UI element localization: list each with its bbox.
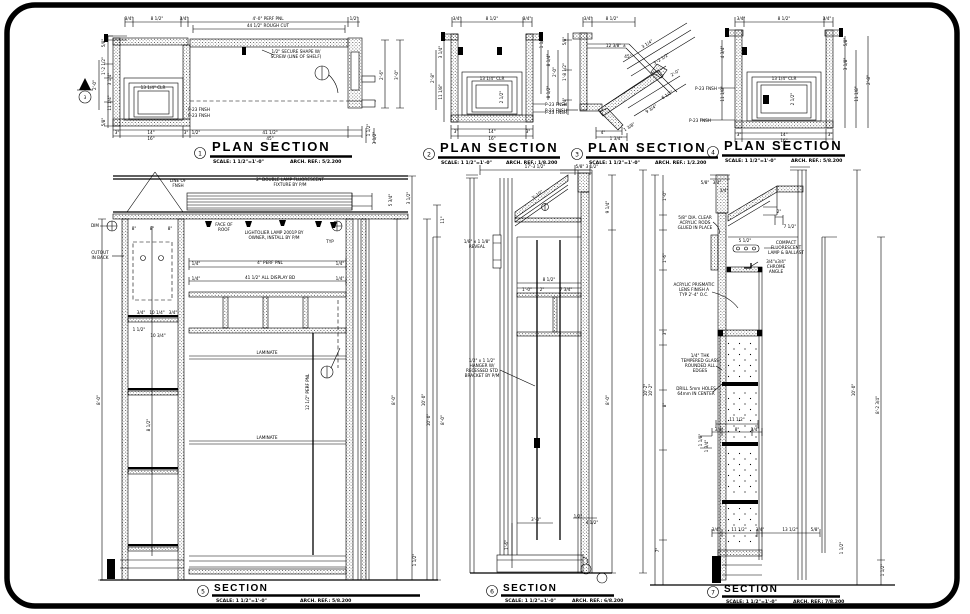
svg-text:P-23 FNSH: P-23 FNSH bbox=[188, 113, 210, 118]
svg-text:12 1/2" PERF PNL: 12 1/2" PERF PNL bbox=[305, 373, 310, 410]
view-title: 3 PLAN SECTION SCALE: 1 1/2"=1'-0" ARCH.… bbox=[572, 140, 719, 166]
view-scale: SCALE: 1 1/2"=1'-0" bbox=[216, 598, 267, 604]
svg-text:5/8": 5/8" bbox=[701, 180, 710, 185]
svg-text:3": 3" bbox=[184, 130, 189, 135]
svg-text:8'-2 3/4": 8'-2 3/4" bbox=[875, 396, 880, 414]
svg-text:8'-0": 8'-0" bbox=[605, 395, 610, 405]
drawing-sheet: 3/4"8 1/2"3/4"4'-0" PERF PNL1/2"44 1/2" … bbox=[0, 0, 970, 614]
svg-text:3/4": 3/4" bbox=[737, 16, 746, 21]
svg-text:3 1/4": 3 1/4" bbox=[107, 73, 112, 86]
view-ref: ARCH. REF.: 7/8.200 bbox=[793, 599, 844, 605]
svg-text:1 3/8": 1 3/8" bbox=[623, 121, 636, 132]
svg-text:5/8": 5/8" bbox=[562, 37, 567, 46]
svg-text:1'-0": 1'-0" bbox=[662, 191, 667, 201]
svg-text:TYP: TYP bbox=[325, 239, 334, 244]
svg-text:3'-0": 3'-0" bbox=[531, 517, 541, 522]
svg-text:EDGES: EDGES bbox=[693, 368, 708, 373]
view-scale: SCALE: 1 1/2"=1'-0" bbox=[213, 159, 264, 165]
svg-text:11 1/8": 11 1/8" bbox=[720, 86, 725, 101]
svg-text:3 1/2": 3 1/2" bbox=[372, 132, 377, 145]
svg-text:3/4": 3/4" bbox=[751, 427, 760, 432]
svg-text:3": 3" bbox=[115, 130, 120, 135]
svg-text:7": 7" bbox=[655, 548, 660, 553]
view-title-text: SECTION bbox=[503, 583, 557, 594]
svg-text:10'-0": 10'-0" bbox=[426, 414, 431, 427]
svg-text:11 1/4": 11 1/4" bbox=[107, 95, 112, 110]
svg-text:3'-0": 3'-0" bbox=[394, 70, 399, 80]
svg-text:12 3/8" ±: 12 3/8" ± bbox=[606, 43, 627, 48]
svg-text:1/2": 1/2" bbox=[350, 16, 359, 21]
svg-text:5 1/2": 5 1/2" bbox=[739, 238, 752, 243]
view-ref: ARCH. REF.: 5/8.200 bbox=[791, 158, 842, 164]
svg-text:TYP 2'-4" O.C.: TYP 2'-4" O.C. bbox=[679, 292, 709, 297]
svg-text:10'-0": 10'-0" bbox=[421, 394, 426, 407]
svg-text:13 1/4" CLR: 13 1/4" CLR bbox=[772, 76, 797, 81]
svg-text:3/4": 3/4" bbox=[137, 310, 146, 315]
svg-text:3/4": 3/4" bbox=[756, 527, 765, 532]
svg-text:8'-0": 8'-0" bbox=[440, 415, 445, 425]
svg-text:3: 3 bbox=[84, 95, 87, 100]
svg-text:2'-8": 2'-8" bbox=[430, 73, 435, 83]
svg-text:41 1/2" ALL DISPLAY BD: 41 1/2" ALL DISPLAY BD bbox=[245, 275, 295, 280]
svg-text:9 1/4": 9 1/4" bbox=[605, 201, 610, 214]
svg-text:3/4": 3/4" bbox=[523, 16, 532, 21]
svg-text:4" PERF PNL: 4" PERF PNL bbox=[257, 260, 283, 265]
view-scale: SCALE: 1 1/2"=1'-0" bbox=[726, 599, 777, 605]
svg-text:8'-0": 8'-0" bbox=[96, 395, 101, 405]
svg-text:13 1/2": 13 1/2" bbox=[782, 527, 797, 532]
svg-text:10'-2": 10'-2" bbox=[648, 384, 653, 397]
detail-marker-leader bbox=[327, 348, 340, 378]
section-5: LINE OFFNSH2" DOUBLE LAMP FLUORESCENTFIX… bbox=[91, 172, 438, 604]
svg-text:3": 3" bbox=[526, 129, 531, 134]
svg-text:2'-8": 2'-8" bbox=[866, 75, 871, 85]
svg-text:3/4": 3/4" bbox=[584, 16, 593, 21]
svg-text:1'-8 1/2": 1'-8 1/2" bbox=[562, 63, 567, 81]
svg-text:1'-2 1/2": 1'-2 1/2" bbox=[101, 57, 106, 75]
svg-text:3/4": 3/4" bbox=[125, 16, 134, 21]
svg-text:3/4": 3/4" bbox=[453, 16, 462, 21]
view-ref: ARCH. REF.: 5/2.200 bbox=[290, 159, 341, 165]
svg-text:REVEAL: REVEAL bbox=[469, 244, 486, 249]
view-scale: SCALE: 1 1/2"=1'-0" bbox=[441, 160, 492, 166]
svg-text:3/4": 3/4" bbox=[720, 188, 729, 193]
svg-text:8 1/2": 8 1/2" bbox=[543, 277, 556, 282]
svg-text:3/4": 3/4" bbox=[712, 527, 721, 532]
svg-text:1 1/2": 1 1/2" bbox=[412, 554, 417, 567]
view-title: 2 PLAN SECTION SCALE: 1 1/2"=1'-0" ARCH.… bbox=[424, 140, 561, 166]
svg-text:11 1/8": 11 1/8" bbox=[854, 86, 859, 101]
plan-section-3: 3/4"8 1/2"12 3/8" ±45°3 1/4"3'-2 1/2"2'-… bbox=[545, 16, 718, 166]
svg-text:8 1/2": 8 1/2" bbox=[546, 86, 551, 99]
view-title-text: SECTION bbox=[214, 583, 268, 594]
svg-text:IN BACK: IN BACK bbox=[91, 255, 108, 260]
svg-text:GLUED IN PLACE: GLUED IN PLACE bbox=[678, 225, 713, 230]
svg-text:11": 11" bbox=[440, 216, 445, 223]
svg-text:FNSH: FNSH bbox=[172, 183, 183, 188]
svg-text:LAMP & BALLAST: LAMP & BALLAST bbox=[768, 250, 804, 255]
svg-text:14": 14" bbox=[147, 130, 154, 135]
linework bbox=[558, 17, 695, 141]
svg-text:44 1/2" ROUGH CUT: 44 1/2" ROUGH CUT bbox=[247, 23, 290, 28]
view-title: 1 PLAN SECTION SCALE: 1 1/2"=1'-0" ARCH.… bbox=[195, 139, 353, 165]
svg-text:1 3/4": 1 3/4" bbox=[704, 440, 709, 453]
svg-text:11 1/2": 11 1/2" bbox=[731, 527, 746, 532]
svg-text:1/4": 1/4" bbox=[192, 261, 201, 266]
svg-text:41 1/2": 41 1/2" bbox=[262, 130, 277, 135]
svg-text:3 1/2": 3 1/2" bbox=[586, 164, 599, 169]
svg-text:3'-2 1/2": 3'-2 1/2" bbox=[652, 52, 670, 66]
svg-text:5 3/4": 5 3/4" bbox=[388, 194, 393, 207]
dimension-labels: LINE OFFNSH2" DOUBLE LAMP FLUORESCENTFIX… bbox=[91, 177, 426, 566]
view-scale: SCALE: 1 1/2"=1'-0" bbox=[505, 598, 556, 604]
svg-text:3/4": 3/4" bbox=[562, 98, 567, 107]
drawing-canvas: 3/4"8 1/2"3/4"4'-0" PERF PNL1/2"44 1/2" … bbox=[0, 0, 970, 614]
svg-text:3": 3" bbox=[662, 331, 667, 336]
svg-text:1 1/2": 1 1/2" bbox=[366, 124, 371, 137]
svg-text:SCREW (LINE OF SHELF): SCREW (LINE OF SHELF) bbox=[271, 54, 322, 59]
svg-text:4 1/2": 4 1/2" bbox=[586, 520, 599, 525]
svg-text:9 3/4": 9 3/4" bbox=[645, 103, 658, 114]
svg-text:1/2": 1/2" bbox=[192, 130, 201, 135]
svg-text:2 1/2": 2 1/2" bbox=[499, 91, 504, 104]
plan-section-4: 3/4"8 1/2"3/4"4 3/4"11 1/8"5/8"3 1/8"11 … bbox=[689, 16, 871, 164]
svg-text:3": 3" bbox=[454, 129, 459, 134]
svg-text:8 1/2": 8 1/2" bbox=[151, 16, 164, 21]
dimension-labels: 1'-0"1'-6"3"8"7"10'-2"5/8"3/4"3/4"5/8" D… bbox=[648, 180, 885, 576]
svg-text:3": 3" bbox=[737, 132, 742, 137]
svg-text:1'-0": 1'-0" bbox=[522, 287, 532, 292]
svg-text:P-23 FNSH: P-23 FNSH bbox=[689, 118, 711, 123]
svg-text:45°: 45° bbox=[624, 54, 631, 59]
svg-text:7 3/4": 7 3/4" bbox=[560, 287, 573, 292]
view-title-text: PLAN SECTION bbox=[212, 139, 330, 154]
svg-text:5/8": 5/8" bbox=[101, 118, 106, 127]
svg-text:ANGLE: ANGLE bbox=[769, 269, 784, 274]
plan-section-1: 3/4"8 1/2"3/4"4'-0" PERF PNL1/2"44 1/2" … bbox=[77, 16, 404, 165]
svg-text:LAMINATE: LAMINATE bbox=[256, 350, 277, 355]
svg-text:1/2": 1/2" bbox=[574, 514, 583, 519]
svg-text:5/8": 5/8" bbox=[101, 39, 106, 48]
svg-text:13 1/4" CLR: 13 1/4" CLR bbox=[480, 76, 505, 81]
svg-text:8 1/2": 8 1/2" bbox=[778, 16, 791, 21]
svg-text:1'-6": 1'-6" bbox=[662, 253, 667, 263]
view-scale: SCALE: 1 1/2"=1'-0" bbox=[725, 158, 776, 164]
svg-text:8": 8" bbox=[662, 403, 667, 408]
svg-text:3/4": 3/4" bbox=[715, 427, 724, 432]
svg-text:1/4": 1/4" bbox=[192, 276, 201, 281]
view-title-text: PLAN SECTION bbox=[724, 138, 842, 153]
view-title: 7 SECTION SCALE: 1 1/2"=1'-0" ARCH. REF.… bbox=[708, 584, 845, 605]
svg-text:3 1/4": 3 1/4" bbox=[438, 46, 443, 59]
svg-text:14": 14" bbox=[488, 129, 495, 134]
view-title: 6 SECTION SCALE: 1 1/2"=1'-0" ARCH. REF.… bbox=[487, 583, 624, 604]
svg-text:11 1/2": 11 1/2" bbox=[729, 417, 744, 422]
view-title-text: PLAN SECTION bbox=[588, 140, 706, 155]
svg-text:1 1/2": 1 1/2" bbox=[839, 542, 844, 555]
view-number: 7 bbox=[711, 590, 715, 597]
view-number: 2 bbox=[427, 152, 431, 159]
view-title-text: SECTION bbox=[724, 584, 778, 595]
svg-text:8 1/4": 8 1/4" bbox=[546, 54, 551, 67]
svg-text:7 1/2": 7 1/2" bbox=[784, 224, 797, 229]
view-number: 4 bbox=[711, 150, 715, 157]
svg-text:OWNER, INSTALL BY P/M: OWNER, INSTALL BY P/M bbox=[249, 235, 300, 240]
svg-text:ROOF: ROOF bbox=[218, 227, 231, 232]
svg-text:14": 14" bbox=[780, 132, 787, 137]
svg-text:FIXTURE BY P/M: FIXTURE BY P/M bbox=[273, 182, 306, 187]
svg-text:3": 3" bbox=[828, 132, 833, 137]
svg-text:16": 16" bbox=[147, 136, 154, 141]
svg-text:5/8": 5/8" bbox=[576, 164, 585, 169]
view-number: 3 bbox=[575, 152, 579, 159]
svg-text:1 1/2": 1 1/2" bbox=[539, 36, 544, 49]
svg-text:8 1/2": 8 1/2" bbox=[486, 16, 499, 21]
view-number: 1 bbox=[198, 151, 202, 158]
view-ref: ARCH. REF.: 1/2.200 bbox=[655, 160, 706, 166]
north-arrow-icon bbox=[79, 78, 91, 90]
svg-text:1/4": 1/4" bbox=[336, 276, 345, 281]
svg-text:10 3/4": 10 3/4" bbox=[150, 333, 165, 338]
svg-text:BRACKET BY P/M: BRACKET BY P/M bbox=[465, 373, 500, 378]
plan-section-2: 3/4"8 1/2"3/4"3 1/4"11 1/8"2'-8"1 1/2"8 … bbox=[424, 16, 567, 166]
svg-text:P-23 FNSH: P-23 FNSH bbox=[695, 86, 717, 91]
svg-text:3/4": 3/4" bbox=[169, 310, 178, 315]
svg-text:1'-6": 1'-6" bbox=[504, 540, 509, 550]
svg-text:1 1/2": 1 1/2" bbox=[880, 564, 885, 577]
svg-text:P-23 FNSH: P-23 FNSH bbox=[545, 108, 567, 113]
view-title-text: PLAN SECTION bbox=[440, 140, 558, 155]
svg-text:64mm IN CENTER: 64mm IN CENTER bbox=[677, 391, 714, 396]
view-number: 5 bbox=[201, 589, 205, 596]
svg-text:8": 8" bbox=[132, 226, 137, 231]
linework bbox=[99, 17, 404, 143]
view-ref: ARCH. REF.: 5/8.200 bbox=[300, 598, 351, 604]
svg-text:4'-0" PERF PNL: 4'-0" PERF PNL bbox=[252, 16, 284, 21]
svg-text:3/4": 3/4" bbox=[180, 16, 189, 21]
section-6: 17'-3 1/2"5/8"3 1/2"11"8'-0"10'-0"1/8" x… bbox=[426, 164, 648, 604]
svg-text:8": 8" bbox=[735, 427, 740, 432]
svg-text:1 1/8": 1 1/8" bbox=[698, 434, 703, 447]
svg-text:8 1/2": 8 1/2" bbox=[606, 16, 619, 21]
svg-text:1 1/2": 1 1/2" bbox=[133, 327, 146, 332]
svg-text:2'-0": 2'-0" bbox=[670, 68, 681, 78]
svg-text:8": 8" bbox=[168, 226, 173, 231]
svg-text:3/4": 3/4" bbox=[823, 16, 832, 21]
svg-text:8 1/2": 8 1/2" bbox=[146, 419, 151, 432]
svg-text:1/4": 1/4" bbox=[336, 261, 345, 266]
svg-text:3/4": 3/4" bbox=[713, 180, 722, 185]
svg-text:8": 8" bbox=[150, 226, 155, 231]
view-title: 4 PLAN SECTION SCALE: 1 1/2"=1'-0" ARCH.… bbox=[708, 138, 846, 164]
svg-text:5/8": 5/8" bbox=[811, 527, 820, 532]
svg-text:2": 2" bbox=[540, 287, 545, 292]
svg-text:13 1/4" CLR: 13 1/4" CLR bbox=[141, 85, 166, 90]
svg-text:10'-0": 10'-0" bbox=[851, 384, 856, 397]
svg-text:3 1/8": 3 1/8" bbox=[843, 58, 848, 71]
svg-text:2": 2" bbox=[777, 209, 782, 214]
svg-text:3 1/2": 3 1/2" bbox=[406, 192, 411, 205]
svg-text:P-23 FNSH: P-23 FNSH bbox=[188, 107, 210, 112]
svg-text:10 1/4": 10 1/4" bbox=[149, 310, 164, 315]
svg-text:17'-3 1/2": 17'-3 1/2" bbox=[525, 164, 546, 169]
svg-text:4": 4" bbox=[601, 130, 606, 135]
detail-marker-icon bbox=[597, 573, 607, 583]
view-number: 6 bbox=[490, 589, 494, 596]
svg-text:11 1/8": 11 1/8" bbox=[438, 84, 443, 99]
svg-text:LAMINATE: LAMINATE bbox=[256, 435, 277, 440]
svg-text:2'-6": 2'-6" bbox=[379, 70, 384, 80]
svg-text:4 3/4": 4 3/4" bbox=[720, 46, 725, 59]
section-7: 1'-0"1'-6"3"8"7"10'-2"5/8"3/4"3/4"5/8" D… bbox=[648, 167, 895, 605]
svg-text:2'-0": 2'-0" bbox=[552, 67, 557, 77]
svg-text:2 1/2": 2 1/2" bbox=[790, 93, 795, 106]
svg-text:6 1/2": 6 1/2" bbox=[661, 89, 674, 100]
svg-text:8'-0": 8'-0" bbox=[391, 395, 396, 405]
view-ref: ARCH. REF.: 6/8.200 bbox=[572, 598, 623, 604]
svg-text:5/8": 5/8" bbox=[843, 38, 848, 47]
svg-text:DIM: DIM bbox=[91, 223, 99, 228]
view-title: 5 SECTION SCALE: 1 1/2"=1'-0" ARCH. REF.… bbox=[198, 583, 421, 604]
svg-text:2'-0": 2'-0" bbox=[92, 80, 97, 90]
